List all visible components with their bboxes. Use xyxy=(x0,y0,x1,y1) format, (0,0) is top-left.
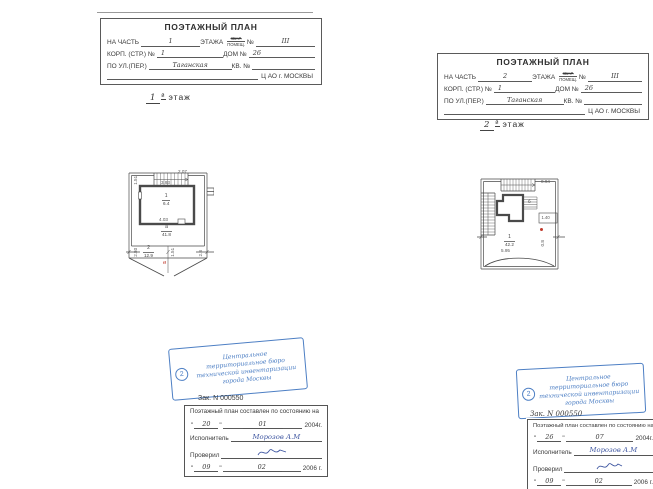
room1-area: 6.4 xyxy=(162,201,170,206)
label-korp: КОРП. (СТР.) № xyxy=(107,51,157,58)
label-district: Ц АО г. МОСКВЫ xyxy=(585,108,642,115)
header1-row4: Ц АО г. МОСКВЫ xyxy=(107,73,315,80)
dim-1-51-band: 1.51 xyxy=(171,248,176,257)
value-part-number: 1 xyxy=(141,38,200,46)
date1-line2 xyxy=(283,428,303,429)
dim-0-8: 0.8 xyxy=(541,240,546,246)
blank-district-line xyxy=(107,79,258,80)
value-part-number: 2 xyxy=(478,73,532,81)
checker-signature-line xyxy=(221,447,322,459)
dim-1-51-stair: 1.51 xyxy=(134,176,139,185)
label-etazha: ЭТАЖА xyxy=(200,39,225,46)
hall-letter: а xyxy=(161,225,172,232)
date2-day: 09 xyxy=(537,478,561,486)
order-number-2: Зак. N 000550 xyxy=(530,410,582,418)
stamp-number: 2 xyxy=(179,370,184,377)
header1-row3: ПО УЛ.(ПЕР.) Таганская КВ. № xyxy=(107,62,315,70)
label-kv: КВ. № xyxy=(564,98,585,105)
hall2-area: 42.2 xyxy=(504,242,515,247)
room1-number: 1 xyxy=(162,194,170,201)
floor-plan-drawing-1: 2.07 1.51 3.93 1 6.4 4.03 а 41.8 2 12.9 … xyxy=(126,170,214,282)
value-dom: 26 xyxy=(581,85,642,93)
checker-signature-line xyxy=(564,461,653,473)
date1-line2 xyxy=(620,441,634,442)
floor-suffix: й xyxy=(495,120,499,127)
date2-month: 02 xyxy=(579,478,619,486)
label-dom: ДОМ № xyxy=(223,51,249,58)
value-street: Таганская xyxy=(149,62,232,70)
label-kv: КВ. № xyxy=(232,63,253,70)
value-korp: 1 xyxy=(157,50,223,58)
signature-table-1: Поэтажный план составлен по состоянию на… xyxy=(184,405,328,477)
hall-area: 41.8 xyxy=(161,232,172,237)
executor-name: Морозов А.М xyxy=(231,434,322,442)
label-district: Ц АО г. МОСКВЫ xyxy=(258,73,315,80)
date1-year: 2004г. xyxy=(633,435,653,442)
floor-plan-header-2: ПОЭТАЖНЫЙ ПЛАН НА ЧАСТЬ 2 ЭТАЖА КВАР. ПО… xyxy=(437,53,649,120)
header-title-2: ПОЭТАЖНЫЙ ПЛАН xyxy=(444,57,642,67)
hall2-number: 1 xyxy=(504,235,515,242)
label-number-sign: № xyxy=(579,74,588,81)
dim-0-94: 0.94 xyxy=(541,180,550,185)
kvar-pomesch-stack: КВАР. ПОМЕЩ. xyxy=(227,36,245,47)
value-street: Таганская xyxy=(486,97,564,105)
table2-executor-row: Исполнитель Морозов А.М xyxy=(533,447,653,455)
date2-line xyxy=(566,485,579,486)
date2-line xyxy=(223,471,242,472)
executor-label: Исполнитель xyxy=(533,449,574,456)
date2-month: 02 xyxy=(242,464,282,472)
band-number: 2 xyxy=(143,246,154,253)
table2-date2-row: " 09 " 02 2006 г. xyxy=(533,478,653,486)
executor-label: Исполнитель xyxy=(190,435,231,442)
table1-date2-row: " 09 " 02 2006 г. xyxy=(190,464,322,472)
floor-plan-drawing-2: 0.94 б 1.40 1 42.2 5.95 0.8 xyxy=(477,177,565,277)
label-etazha: ЭТАЖА xyxy=(532,74,557,81)
checker-label: Проверил xyxy=(533,466,564,473)
date1-month: 07 xyxy=(580,434,620,442)
table-caption: Поэтажный план составлен по состоянию на xyxy=(533,423,653,429)
table1-caption-row: Поэтажный план составлен по состоянию на xyxy=(190,409,322,416)
floor-word: этаж xyxy=(503,119,525,129)
floor-label-2: 2йэтаж xyxy=(480,119,525,130)
floor-number: 1 xyxy=(146,93,160,104)
room1-label: 1 6.4 xyxy=(162,194,170,206)
header2-row1: НА ЧАСТЬ 2 ЭТАЖА КВАР. ПОМЕЩ. № III xyxy=(444,71,642,82)
dim-2-8: 2.8 xyxy=(199,250,204,256)
signature-table-2: Поэтажный план составлен по состоянию на… xyxy=(527,419,653,489)
header2-row2: КОРП. (СТР.) № 1 ДОМ № 26 xyxy=(444,85,642,93)
table-caption: Поэтажный план составлен по состоянию на xyxy=(190,409,319,416)
header2-row4: Ц АО г. МОСКВЫ xyxy=(444,108,642,115)
floor-word: этаж xyxy=(169,92,191,102)
hall2-label: 1 42.2 xyxy=(504,235,515,247)
table2-caption-row: Поэтажный план составлен по состоянию на xyxy=(533,423,653,429)
dim-2-07: 2.07 xyxy=(178,170,187,175)
order-number-1: Зак. N 000550 xyxy=(198,395,243,402)
red-annotation-dot xyxy=(540,228,543,231)
date1-month: 01 xyxy=(243,421,283,429)
table2-checker-row: Проверил xyxy=(533,461,653,473)
dim-2-80: 2.80 xyxy=(134,248,139,257)
signature-icon xyxy=(594,461,624,472)
stamp-text: Центральное территориальное бюро техниче… xyxy=(190,348,302,389)
date2-line2 xyxy=(619,485,632,486)
header1-row1: НА ЧАСТЬ 1 ЭТАЖА КВАР. ПОМЕЩ. № III xyxy=(107,36,315,47)
stamp-number: 2 xyxy=(526,390,530,397)
blank-kv-line xyxy=(252,69,315,70)
label-na-chast: НА ЧАСТЬ xyxy=(107,39,141,46)
floor-plan-header-1: ПОЭТАЖНЫЙ ПЛАН НА ЧАСТЬ 1 ЭТАЖА КВАР. ПО… xyxy=(100,18,322,85)
date1-day: 20 xyxy=(194,421,218,429)
label-korp: КОРП. (СТР.) № xyxy=(444,86,494,93)
label-na-chast: НА ЧАСТЬ xyxy=(444,74,478,81)
stamp-text: Центральное территориальное бюро техниче… xyxy=(537,372,641,409)
date2-line2 xyxy=(282,471,301,472)
floor-suffix: й xyxy=(161,93,165,100)
label-dom: ДОМ № xyxy=(555,86,581,93)
dim-1-40: 1.40 xyxy=(542,216,550,220)
bti-stamp-1: 2 Центральное территориальное бюро техни… xyxy=(168,337,308,401)
stamp-number-circle: 2 xyxy=(522,387,536,401)
value-premise-number: III xyxy=(256,38,315,46)
value-korp: 1 xyxy=(494,85,555,93)
date2-year: 2006 г. xyxy=(632,479,653,486)
header-title-1: ПОЭТАЖНЫЙ ПЛАН xyxy=(107,22,315,32)
hall-label: а 41.8 xyxy=(161,225,172,237)
blank-kv-line xyxy=(584,104,642,105)
value-dom: 26 xyxy=(249,50,315,58)
band-label: 2 12.9 xyxy=(143,246,154,258)
label-pomesch: ПОМЕЩ. xyxy=(559,77,577,82)
date1-line xyxy=(223,428,243,429)
label-street: ПО УЛ.(ПЕР.) xyxy=(444,98,486,105)
table1-date1-row: " 20 " 01 2004г. xyxy=(190,421,322,429)
floor-number: 2 xyxy=(480,120,494,131)
value-premise-number: III xyxy=(588,73,642,81)
table2-date1-row: " 26 " 07 2004г. xyxy=(533,434,653,442)
floor-label-1: 1йэтаж xyxy=(146,92,191,103)
dim-3-93: 3.93 xyxy=(161,181,170,186)
date2-day: 09 xyxy=(194,464,218,472)
label-pomesch: ПОМЕЩ. xyxy=(227,42,245,47)
dim-4-03: 4.03 xyxy=(159,218,168,223)
executor-name: Морозов А.М xyxy=(574,447,653,455)
header2-row3: ПО УЛ.(ПЕР.) Таганская КВ. № xyxy=(444,97,642,105)
plan2-linework xyxy=(477,177,565,277)
red-annotation-mark: в xyxy=(163,260,166,266)
table1-executor-row: Исполнитель Морозов А.М xyxy=(190,434,322,442)
checker-label: Проверил xyxy=(190,452,221,459)
band-area: 12.9 xyxy=(143,253,154,258)
stamp-number-circle: 2 xyxy=(175,367,189,381)
date1-year: 2004г. xyxy=(302,422,322,429)
stair-room-letter: б xyxy=(528,200,531,205)
sheet-edge-line xyxy=(97,12,313,13)
table1-checker-row: Проверил xyxy=(190,447,322,459)
signature-icon xyxy=(255,447,289,458)
date1-day: 26 xyxy=(537,434,561,442)
kvar-pomesch-stack: КВАР. ПОМЕЩ. xyxy=(559,71,577,82)
date1-line xyxy=(566,441,580,442)
date2-year: 2006 г. xyxy=(301,465,322,472)
blank-district-line xyxy=(444,114,585,115)
label-street: ПО УЛ.(ПЕР.) xyxy=(107,63,149,70)
header1-row2: КОРП. (СТР.) № 1 ДОМ № 26 xyxy=(107,50,315,58)
scanned-floor-plan-document: ПОЭТАЖНЫЙ ПЛАН НА ЧАСТЬ 1 ЭТАЖА КВАР. ПО… xyxy=(0,0,653,489)
label-number-sign: № xyxy=(247,39,256,46)
dim-5-95: 5.95 xyxy=(501,249,510,254)
